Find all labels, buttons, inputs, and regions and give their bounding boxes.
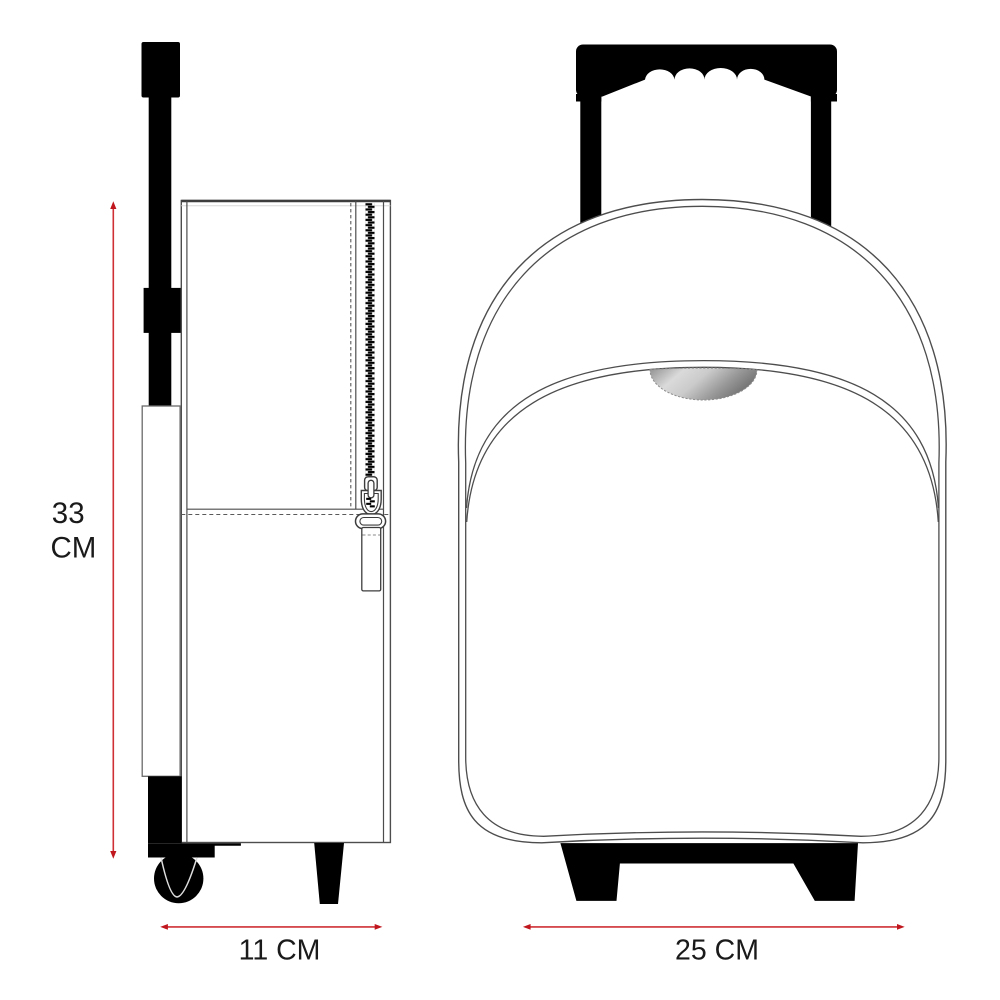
svg-text:25 CM: 25 CM	[675, 935, 759, 967]
svg-text:33: 33	[52, 497, 85, 530]
svg-text:11 CM: 11 CM	[239, 935, 321, 967]
svg-text:CM: CM	[50, 532, 96, 565]
